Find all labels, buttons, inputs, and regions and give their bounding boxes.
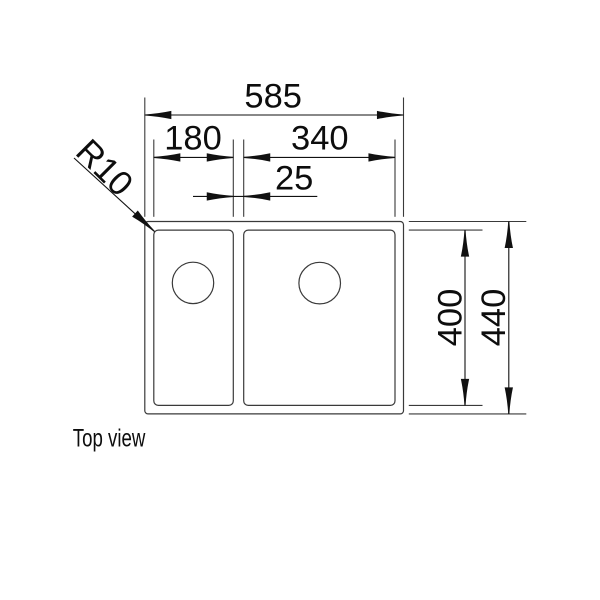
svg-text:585: 585 [244, 78, 302, 116]
svg-text:180: 180 [164, 119, 222, 157]
svg-text:400: 400 [431, 289, 469, 347]
svg-text:25: 25 [275, 160, 313, 198]
svg-text:440: 440 [475, 289, 513, 347]
svg-text:340: 340 [291, 119, 349, 157]
svg-text:Top view: Top view [73, 425, 146, 453]
